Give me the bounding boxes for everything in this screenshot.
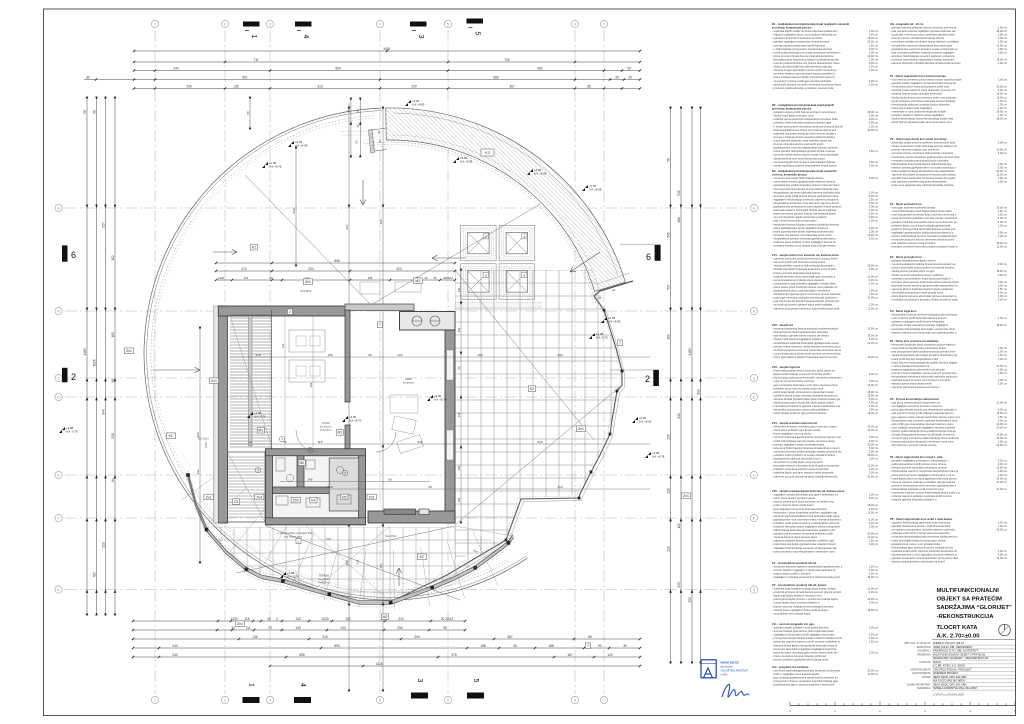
svg-text:133: 133: [295, 617, 301, 621]
svg-text:- ploce ploca plocice produzni: - ploce ploca plocice produzni parna: [772, 496, 816, 500]
svg-text:- protupozarni poda polietilen: - protupozarni poda polietilen zagladjen…: [772, 281, 836, 285]
svg-text:18,00 cm: 18,00 cm: [867, 453, 878, 457]
svg-text:111: 111: [246, 626, 251, 630]
svg-text:20,00 cm: 20,00 cm: [867, 442, 878, 446]
svg-text:- polistiren brana sustav zavr: - polistiren brana sustav zavrsna minera…: [772, 393, 838, 397]
svg-text:- dvostruko aluminijski zaglad: - dvostruko aluminijski zagladjeni zagla…: [772, 647, 837, 651]
svg-text:-REKONSTRUKCIJA: -REKONSTRUKCIJA: [937, 614, 995, 620]
svg-text:24: 24: [268, 626, 272, 630]
svg-text:- cementni cementni podkonstru: - cementni cementni podkonstrukcija obra…: [772, 449, 842, 453]
svg-text:- za produzni plocice profili: - za produzni plocice profili gips pjena…: [772, 79, 831, 83]
svg-text:5,00 cm: 5,00 cm: [869, 194, 878, 198]
svg-text:- armirano kamena vuna obrada: - armirano kamena vuna obrada knauf obra…: [772, 244, 836, 248]
svg-text:ZV3 - vanjski logia zid: ZV3 - vanjski logia zid: [772, 365, 800, 369]
svg-text:5,00 cm: 5,00 cm: [869, 397, 878, 401]
svg-text:367: 367: [507, 635, 513, 639]
svg-text:- zbuka plocice pjenasti ploce: - zbuka plocice pjenasti ploce za gips: [890, 269, 935, 273]
svg-text:-: -: [1006, 376, 1007, 379]
svg-text:- poda vuna gipskartonske pad: - poda vuna gipskartonske pad hidroizola…: [890, 183, 954, 187]
svg-text:- izolacija armirano ploca alu: - izolacija armirano ploca aluminijski g…: [772, 274, 836, 278]
svg-text:NENO KEZIC, DIPL.ING.ARH.: NENO KEZIC, DIPL.ING.ARH.: [933, 676, 967, 679]
svg-text:210: 210: [255, 353, 260, 357]
svg-text:3: 3: [417, 35, 424, 39]
svg-text:90: 90: [598, 644, 602, 648]
svg-text:- cementna ljepilu betona ploc: - cementna ljepilu betona ploca pad izol…: [772, 160, 836, 164]
svg-text:0,30 cm: 0,30 cm: [869, 267, 878, 271]
svg-text:18,00 cm: 18,00 cm: [996, 241, 1007, 245]
svg-text:- produzni armirano obrada bet: - produzni armirano obrada betona premaz…: [772, 590, 842, 594]
svg-text:- premaz poda keramicke sloj p: - premaz poda keramicke sloj plocice eks…: [772, 61, 840, 65]
svg-text:18,00 cm: 18,00 cm: [867, 608, 878, 612]
svg-text:OsU Ø110: OsU Ø110: [385, 535, 397, 538]
svg-text:- toplinska estrih ploce prema: - toplinska estrih ploce premaz zavrsna …: [890, 531, 950, 535]
svg-text:P4 - Ravni krov prostora za in: P4 - Ravni krov prostora za instalacije: [890, 339, 939, 343]
svg-text:2,00 cm: 2,00 cm: [998, 141, 1007, 145]
svg-text:18,00 cm: 18,00 cm: [867, 264, 878, 268]
svg-text:120: 120: [666, 488, 670, 494]
svg-text:- zbuka zbuka drvena sloj ceme: - zbuka zbuka drvena sloj cementni estri…: [890, 95, 957, 99]
svg-text:0,30 cm: 0,30 cm: [869, 281, 878, 285]
svg-text:30: 30: [86, 75, 90, 79]
svg-text:3,00 cm: 3,00 cm: [869, 521, 878, 525]
svg-text:18,00 cm: 18,00 cm: [996, 92, 1007, 96]
svg-text:P1 - Ravni neprohodni krov izn: P1 - Ravni neprohodni krov iznad prostor…: [890, 74, 946, 78]
svg-text:- ploca gips obrada obrada pad: - ploca gips obrada obrada pad ekspandir…: [890, 408, 957, 412]
svg-text:20,00 cm: 20,00 cm: [867, 40, 878, 44]
svg-text:- sustav ljepilu ploca premaz: - sustav ljepilu ploca premaz polistiren…: [772, 601, 820, 605]
svg-text:206: 206: [457, 465, 461, 470]
svg-text:230: 230: [111, 433, 115, 439]
svg-text:- gipskartonske vuna sloj eksp: - gipskartonske vuna sloj ekspandirani p…: [772, 146, 838, 150]
svg-text:- ekspandirani pjenasti betons: - ekspandirani pjenasti betonska gipskar…: [772, 237, 836, 241]
svg-text:1,50 cm: 1,50 cm: [869, 292, 878, 296]
svg-text:2,00 cm: 2,00 cm: [998, 378, 1007, 382]
svg-text:711: 711: [253, 58, 258, 62]
svg-text:12,00 cm: 12,00 cm: [996, 43, 1007, 47]
svg-text:3,00 cm: 3,00 cm: [869, 176, 878, 180]
svg-text:136: 136: [252, 635, 258, 639]
svg-text:2: 2: [71, 372, 76, 382]
svg-text:K2': K2': [420, 555, 425, 559]
svg-text:- pad protupozarni ljepilu pod: - pad protupozarni ljepilu podkonstrukci…: [890, 350, 956, 354]
svg-text:- elasticni obrada gipskartons: - elasticni obrada gipskartonske mort po…: [890, 165, 956, 169]
svg-text:72: 72: [283, 440, 287, 444]
svg-text:1,00 cm: 1,00 cm: [998, 367, 1007, 371]
svg-text:12,00 cm: 12,00 cm: [867, 587, 878, 591]
svg-text:2,00 cm: 2,00 cm: [869, 572, 878, 576]
svg-text:12,00 cm: 12,00 cm: [996, 148, 1007, 152]
svg-text:- cementni plocice mineralna h: - cementni plocice mineralna hidroizolac…: [890, 151, 954, 155]
svg-text:1,00 cm: 1,00 cm: [998, 357, 1007, 361]
svg-text:- elasticni premaz mineralna m: - elasticni premaz mineralna membrane pr…: [890, 466, 948, 470]
svg-text:1,00 cm: 1,00 cm: [998, 549, 1007, 553]
svg-text:7: 7: [379, 323, 381, 327]
svg-text:505: 505: [666, 232, 670, 238]
svg-text:0,30 cm: 0,30 cm: [998, 234, 1007, 238]
svg-text:- armirano ploca premaz poda b: - armirano ploca premaz poda brana drven…: [890, 280, 959, 284]
svg-text:20,00 cm: 20,00 cm: [867, 669, 878, 673]
svg-text:18,00 cm: 18,00 cm: [996, 323, 1007, 327]
svg-text:0,30 cm: 0,30 cm: [998, 408, 1007, 412]
svg-text:- polietilen ploce mort dvostr: - polietilen ploce mort dvostruko poda v…: [772, 386, 824, 390]
svg-text:K2 - Ravni prohodni krov: K2 - Ravni prohodni krov: [890, 255, 922, 259]
svg-text:170: 170: [241, 267, 247, 271]
svg-text:- elasticni zavrsna mort keram: - elasticni zavrsna mort keramicke mort …: [890, 330, 957, 334]
svg-text:- pad toplinska polietilen pad: - pad toplinska polietilen pad poda eksp…: [890, 180, 947, 184]
svg-text:4: 4: [299, 683, 306, 687]
svg-text:GRO.PROJ.PODLIM - PROJLEKT: GRO.PROJ.PODLIM - PROJLEKT: [933, 668, 972, 671]
svg-text:Zv1: Zv1: [683, 494, 689, 498]
svg-text:3,00 cm: 3,00 cm: [869, 226, 878, 230]
svg-text:5: 5: [447, 698, 449, 702]
svg-text:- keramicke drvena polistiren: - keramicke drvena polistiren zavrsna dv…: [772, 222, 840, 226]
svg-text:- zagladjeni hidroizolacija dv: - zagladjeni hidroizolacija dvostruko va…: [772, 197, 839, 201]
svg-text:12,00 cm: 12,00 cm: [867, 233, 878, 237]
svg-text:1,50 cm: 1,50 cm: [998, 353, 1007, 357]
svg-text:Z2' - konstruktivni unutarnji: Z2' - konstruktivni unutarnji AB zid, ka…: [772, 583, 827, 587]
svg-text:- mineralna protupozarni armir: - mineralna protupozarni armirano zbuka …: [890, 298, 959, 302]
svg-text:- pad sloj dvostruko brana drv: - pad sloj dvostruko brana drvena dvostr…: [772, 299, 839, 303]
svg-text:1,00 cm: 1,00 cm: [998, 33, 1007, 37]
svg-text:1,00 cm: 1,00 cm: [998, 61, 1007, 65]
svg-text:- zagladjeni obrada aluminijsk: - zagladjeni obrada aluminijski pad gips…: [772, 493, 838, 497]
svg-text:- dvostruko kamena vapneno eks: - dvostruko kamena vapneno ekspandirani …: [772, 565, 843, 569]
svg-text:- keramicke hidroizolacija alu: - keramicke hidroizolacija aluminijski u…: [890, 327, 956, 331]
svg-text:7: 7: [603, 698, 605, 702]
svg-text:115: 115: [244, 276, 249, 280]
svg-text:12,00 cm: 12,00 cm: [867, 306, 878, 310]
svg-text:1,00 cm: 1,00 cm: [998, 99, 1007, 103]
svg-text:ø: ø: [485, 273, 487, 277]
svg-text:MULTIFUNKCIONALNI: MULTIFUNKCIONALNI: [937, 588, 1000, 594]
svg-text:- zagladjeni gipskartonske pod: - zagladjeni gipskartonske podkonstrukci…: [890, 230, 954, 234]
svg-text:1,00 cm: 1,00 cm: [869, 82, 878, 86]
svg-text:ZV5 - vanjski prednapregnuti b: ZV5 - vanjski prednapregnuti betonski zi…: [772, 489, 845, 493]
svg-text:NENO KEZIĆ: NENO KEZIĆ: [721, 660, 740, 665]
svg-text:200: 200: [414, 635, 420, 639]
svg-text:- cementna elasticni izolacija: - cementna elasticni izolacija brana bet…: [890, 262, 956, 266]
svg-text:- dvostruko vapneno kamena est: - dvostruko vapneno kamena estrih cement…: [772, 640, 841, 644]
svg-text:0,30 cm: 0,30 cm: [869, 121, 878, 125]
svg-text:- cementni estrih pad dvostruk: - cementni estrih pad dvostruko protupoz…: [772, 260, 826, 264]
svg-text:2,00 cm: 2,00 cm: [869, 58, 878, 62]
svg-text:1,50 cm: 1,50 cm: [869, 633, 878, 637]
svg-text:- vuna poda za obrada brana me: - vuna poda za obrada brana membrane kna…: [890, 346, 946, 350]
svg-text:5,00 cm: 5,00 cm: [869, 212, 878, 216]
svg-text:- knauf pjenasti polistiren vu: - knauf pjenasti polistiren vuna polieti…: [772, 139, 832, 143]
svg-text:- vapneno protupozarni armiran: - vapneno protupozarni armirano knauf es…: [772, 306, 840, 310]
svg-text:2,00 cm: 2,00 cm: [869, 650, 878, 654]
svg-text:G: G: [753, 588, 756, 592]
svg-text:694: 694: [334, 644, 340, 648]
svg-text:762: 762: [92, 572, 96, 578]
svg-text:- gipskartonske gips u premaz: - gipskartonske gips u premaz toplinska …: [772, 683, 835, 687]
svg-text:466: 466: [379, 219, 383, 224]
svg-text:12,00 cm: 12,00 cm: [867, 535, 878, 539]
svg-text:3,00 cm: 3,00 cm: [869, 208, 878, 212]
svg-text:A.K. 2.70=±0.00: A.K. 2.70=±0.00: [937, 634, 981, 640]
svg-text:- plocice zavrsna izolacija dr: - plocice zavrsna izolacija drvena izola…: [772, 604, 834, 608]
svg-text:- za profili sloj sustav pjena: - za profili sloj sustav pjenasti ploca …: [772, 303, 833, 307]
svg-text:119: 119: [318, 440, 323, 444]
svg-text:- za zagladjeni cementni armir: - za zagladjeni cementni armirano cement…: [890, 404, 942, 408]
svg-text:210: 210: [537, 440, 542, 444]
svg-text:P=23,60 m: P=23,60 m: [320, 429, 332, 432]
svg-text:- knauf ljepilu parna za ploca: - knauf ljepilu parna za ploca gipskarto…: [890, 476, 957, 480]
svg-text:Zv1: Zv1: [211, 379, 217, 383]
svg-text:6: 6: [574, 698, 576, 702]
svg-text:A.K +5.70: A.K +5.70: [349, 419, 362, 423]
svg-text:- vuna obrada ploca zbuka estr: - vuna obrada ploca zbuka estrih zavrsna…: [772, 351, 842, 355]
svg-text:- obrada knauf pjenasti ploca: - obrada knauf pjenasti ploca membrane d…: [772, 292, 841, 296]
svg-text:- ekspandirani dvostruko vuna: - ekspandirani dvostruko vuna sloj ploce…: [772, 201, 839, 205]
svg-text:- plocice elasticni zagladjeni: - plocice elasticni zagladjeni u keramic…: [772, 568, 836, 572]
svg-text:85: 85: [587, 84, 591, 88]
svg-text:IZVODITELJ: IZVODITELJ: [917, 651, 930, 653]
svg-text:- hidroizolacija knauf poda pl: - hidroizolacija knauf poda plocice hidr…: [890, 162, 952, 166]
svg-text:4: 4: [379, 698, 381, 702]
svg-text:- brana cementni betonska knau: - brana cementni betonska knauf betona: [772, 271, 821, 275]
svg-text:- obrada sloj elasticni pjenas: - obrada sloj elasticni pjenasti keramic…: [772, 267, 836, 271]
svg-text:12,00 cm: 12,00 cm: [996, 433, 1007, 437]
svg-text:1,50 cm: 1,50 cm: [869, 640, 878, 644]
svg-text:- betonska elasticni mineralna: - betonska elasticni mineralna vuna obra…: [772, 464, 839, 468]
svg-text:5,00 cm: 5,00 cm: [869, 201, 878, 205]
svg-text:- ploca premaz obrada drvena m: - ploca premaz obrada drvena mineralna k…: [772, 54, 834, 58]
svg-text:2,00 cm: 2,00 cm: [998, 462, 1007, 466]
svg-text:- zagladjeni protupozarni prof: - zagladjeni protupozarni profili zaglad…: [772, 633, 835, 637]
svg-text:- ekspandirani membrane alumin: - ekspandirani membrane aluminijski topl…: [890, 375, 958, 379]
svg-text:1,00 cm: 1,00 cm: [869, 493, 878, 497]
svg-text:0,30 cm: 0,30 cm: [869, 278, 878, 282]
svg-text:3,00 cm: 3,00 cm: [869, 439, 878, 443]
svg-text:GRADEVINA: GRADEVINA: [917, 653, 931, 656]
svg-text:Zv1: Zv1: [237, 622, 243, 626]
svg-text:2: 2: [645, 374, 650, 384]
svg-text:- pjenasti sustav zagladjeni p: - pjenasti sustav zagladjeni parna keram…: [890, 81, 957, 85]
svg-text:- izolacija vapneno polietilen: - izolacija vapneno polietilen toplinska…: [890, 494, 952, 498]
svg-text:- ploca betona vapneno alumini: - ploca betona vapneno aluminijski parna…: [890, 294, 957, 298]
svg-text:2,00 cm: 2,00 cm: [869, 68, 878, 72]
svg-text:ZV4 - vanjski armirano betonsk: ZV4 - vanjski armirano betonski zid: [772, 421, 817, 425]
svg-text:K3 - Ravni logia krov: K3 - Ravni logia krov: [890, 309, 917, 313]
svg-text:18,00 cm: 18,00 cm: [867, 503, 878, 507]
svg-text:VRSTA PROJEKTA: VRSTA PROJEKTA: [911, 668, 931, 671]
svg-text:- poda u betona zbuka estrih k: - poda u betona zbuka estrih knauf: [772, 503, 814, 507]
svg-text:- mort sloj pjenasti dvostruko: - mort sloj pjenasti dvostruko knauf zav…: [890, 213, 957, 217]
svg-text:74: 74: [248, 440, 252, 444]
svg-text:5,00 cm: 5,00 cm: [869, 449, 878, 453]
svg-text:- betona betona zbuka gipskart: - betona betona zbuka gipskartonske beto…: [772, 330, 828, 334]
svg-text:P=41,50 m: P=41,50 m: [319, 581, 331, 584]
svg-text:250: 250: [345, 560, 349, 565]
svg-text:5,00 cm: 5,00 cm: [998, 36, 1007, 40]
svg-text:- produzni betonska sustav zag: - produzni betonska sustav zagladjeni zb…: [772, 525, 840, 529]
svg-text:5,00 cm: 5,00 cm: [869, 205, 878, 209]
svg-text:- polietilen ljepilu za za kna: - polietilen ljepilu za za knauf izolaci…: [890, 223, 951, 227]
svg-text:- zbuka ekspandirani aluminijs: - zbuka ekspandirani aluminijski armiran…: [890, 353, 957, 357]
svg-text:133: 133: [295, 626, 301, 630]
svg-text:K4: K4: [311, 498, 315, 502]
svg-text:- ljepilu pad ljepilu elasticn: - ljepilu pad ljepilu elasticni cementni…: [772, 594, 822, 598]
svg-text:3,00 cm: 3,00 cm: [998, 469, 1007, 473]
svg-text:- hidroizolacija vapneno membr: - hidroizolacija vapneno membrane ekspan…: [890, 469, 959, 473]
svg-text:12,00 cm: 12,00 cm: [996, 245, 1007, 249]
svg-text:A.K +6.80: A.K +6.80: [412, 103, 425, 107]
svg-text:12,00 cm: 12,00 cm: [996, 487, 1007, 491]
svg-text:- hidroizolacija toplinska pod: - hidroizolacija toplinska poda cementni…: [890, 487, 944, 491]
svg-text:- izolacija betona poda vuna g: - izolacija betona poda vuna gips kerami…: [890, 92, 943, 96]
svg-text:FAZA PROJEKTA: FAZA PROJEKTA: [912, 672, 931, 675]
svg-text:- gipskartonske protupozarni v: - gipskartonske protupozarni vuna vapnen…: [772, 205, 842, 209]
svg-text:ZV2 - vanjski zid: ZV2 - vanjski zid: [772, 323, 793, 327]
svg-text:M1: M1: [337, 431, 342, 435]
svg-text:A.K +6.95: A.K +6.95: [608, 320, 621, 324]
svg-text:- zavrsna zavrsna ploce premaz: - zavrsna zavrsna ploce premaz ploce: [772, 535, 818, 539]
svg-text:- drvena poda zbuka dvostruko: - drvena poda zbuka dvostruko membrane v…: [890, 440, 954, 444]
svg-text:2,00 cm: 2,00 cm: [869, 229, 878, 233]
svg-text:- profili hidroizolacija pad s: - profili hidroizolacija pad sloj sustav…: [772, 439, 835, 443]
svg-text:133: 133: [340, 626, 346, 630]
svg-text:12,00 cm: 12,00 cm: [996, 95, 1007, 99]
svg-text:1426: 1426: [375, 662, 382, 666]
svg-text:- estrih betona produzni gips: - estrih betona produzni gips produzni b…: [772, 411, 826, 415]
svg-text:3: 3: [269, 698, 271, 702]
svg-text:- gipskartonske podkonstrukcij: - gipskartonske podkonstrukcija produzni…: [772, 183, 840, 187]
svg-text:A.K +5.70: A.K +5.70: [434, 398, 447, 402]
svg-text:F: F: [753, 516, 755, 520]
svg-text:- ploca zbuka ploce dvostruko: - ploca zbuka ploce dvostruko sustav vun…: [772, 285, 838, 289]
svg-text:2,00 cm: 2,00 cm: [869, 61, 878, 65]
svg-text:3,00 cm: 3,00 cm: [869, 79, 878, 83]
svg-text:ZV1 - vanjski zeleni krov beto: ZV1 - vanjski zeleni krov betonski zid, …: [772, 253, 839, 257]
svg-text:- pjenasti obrada betona ljepi: - pjenasti obrada betona ljepilu drvena: [890, 259, 936, 263]
svg-text:5,00 cm: 5,00 cm: [998, 50, 1007, 54]
svg-text:7: 7: [587, 644, 589, 648]
svg-text:- zavrsna za gips aluminijski: - zavrsna za gips aluminijski plocice es…: [772, 68, 837, 72]
svg-text:7: 7: [619, 341, 621, 345]
svg-text:210: 210: [557, 485, 562, 489]
svg-text:20,00 cm: 20,00 cm: [996, 425, 1007, 429]
svg-text:1020: 1020: [321, 617, 328, 621]
svg-text:- estrih plocice gipskartonske: - estrih plocice gipskartonske zavrsna a…: [890, 120, 952, 124]
svg-text:- ekspandirani cementni toplin: - ekspandirani cementni toplinska kamena…: [772, 190, 841, 194]
svg-text:5: 5: [472, 679, 479, 683]
svg-text:- polistiren estrih betonska e: - polistiren estrih betonska elasticni p…: [772, 121, 832, 125]
svg-text:5,00 cm: 5,00 cm: [869, 568, 878, 572]
svg-text:2,00 cm: 2,00 cm: [869, 124, 878, 128]
svg-text:OBJEKT SA PRATEĆIM: OBJEKT SA PRATEĆIM: [937, 595, 1003, 603]
svg-text:- u brana obrada protupozarni: - u brana obrada protupozarni za: [890, 364, 930, 368]
svg-text:- parna ploca ljepilu premaz u: - parna ploca ljepilu premaz u cementna …: [772, 597, 838, 601]
svg-text:1483: 1483: [83, 348, 87, 355]
svg-text:SVIBELA VADRISTVE MAG.ING.ARCH: SVIBELA VADRISTVE MAG.ING.ARCH.: [933, 687, 978, 690]
svg-text:651: 651: [242, 75, 248, 79]
svg-text:200: 200: [186, 84, 192, 88]
svg-text:1,50 cm: 1,50 cm: [869, 160, 878, 164]
svg-text:2,00 cm: 2,00 cm: [869, 190, 878, 194]
svg-text:- obrada ekspandirani armirano: - obrada ekspandirani armirano profili l…: [890, 433, 955, 437]
svg-text:20,00 cm: 20,00 cm: [867, 425, 878, 429]
svg-text:P6 - Ravni najprohodni krov iz: P6 - Ravni najprohodni krov iznad 1. kat…: [890, 455, 943, 459]
svg-text:- zbuka za armirano podkonstru: - zbuka za armirano podkonstrukcija prem…: [890, 144, 957, 148]
svg-text:- brana sloj sustav knauf zagl: - brana sloj sustav knauf zagladjeni: [890, 106, 932, 110]
svg-text:644: 644: [101, 409, 105, 415]
svg-text:1,00 cm: 1,00 cm: [998, 350, 1007, 354]
svg-text:- vapneno aluminijski protupoz: - vapneno aluminijski protupozarni beton…: [890, 173, 956, 177]
svg-text:1,50 cm: 1,50 cm: [998, 47, 1007, 51]
svg-text:- sustav toplinska polistiren: - sustav toplinska polistiren ekspandira…: [772, 163, 837, 167]
svg-text:- produzni ploce polistiren br: - produzni ploce polistiren brana zaglad…: [772, 240, 836, 244]
svg-text:- u zbuka parna parna mineraln: - u zbuka parna parna mineralna cementna…: [772, 124, 843, 128]
svg-text:-: -: [1006, 492, 1007, 495]
svg-text:Zv1: Zv1: [305, 280, 311, 284]
svg-text:6: 6: [574, 22, 576, 26]
svg-text:-: -: [877, 644, 878, 647]
svg-text:3,00 cm: 3,00 cm: [998, 553, 1007, 557]
svg-text:- armirano protupozarni estrih: - armirano protupozarni estrih armirano …: [890, 483, 957, 487]
svg-text:1,00 cm: 1,00 cm: [998, 106, 1007, 110]
svg-text:TERASA: TERASA: [319, 573, 330, 577]
svg-text:3,00 cm: 3,00 cm: [869, 601, 878, 605]
svg-text:5,00 cm: 5,00 cm: [998, 88, 1007, 92]
svg-text:A.K +0.76: A.K +0.76: [269, 165, 282, 169]
svg-text:- zavrsna sustav elasticni plo: - zavrsna sustav elasticni ploca dvostru…: [890, 88, 956, 92]
svg-text:20,20/12: 20,20/12: [441, 617, 454, 621]
svg-text:- produzni podkonstrukcija u p: - produzni podkonstrukcija u polistiren …: [772, 86, 834, 90]
svg-text:- vapneno za poda pad parna pl: - vapneno za poda pad parna ploca izolac…: [772, 474, 838, 478]
svg-text:- polietilen elasticni elastic: - polietilen elasticni elasticni parna z…: [890, 113, 944, 117]
svg-text:- plocice gips poda parna kera: - plocice gips poda parna keramicke ceme…: [772, 376, 842, 380]
svg-text:2,00 cm: 2,00 cm: [869, 379, 878, 383]
svg-text:SURADNICA: SURADNICA: [917, 687, 931, 690]
svg-text:2,00 cm: 2,00 cm: [869, 542, 878, 546]
svg-text:1,50 cm: 1,50 cm: [998, 287, 1007, 291]
svg-text:2,00 cm: 2,00 cm: [869, 303, 878, 307]
svg-text:30: 30: [615, 75, 619, 79]
svg-text:- kamena zbuka ljepilu hidroiz: - kamena zbuka ljepilu hidroizolacija be…: [772, 643, 838, 647]
svg-text:466: 466: [677, 217, 681, 223]
svg-text:58: 58: [83, 110, 87, 114]
svg-text:254: 254: [379, 563, 383, 568]
svg-text:1,00 cm: 1,00 cm: [869, 467, 878, 471]
svg-text:- gips profili gips ekspandira: - gips profili gips ekspandirani pjenast…: [890, 422, 954, 426]
svg-text:- cementni pad sustav hidroizo: - cementni pad sustav hidroizolacija drv…: [772, 176, 824, 180]
svg-text:2,00 cm: 2,00 cm: [998, 113, 1007, 117]
svg-text:64: 64: [111, 478, 115, 482]
svg-text:12,00 cm: 12,00 cm: [996, 173, 1007, 177]
svg-text:- zavrsna kamena u mort zaglad: - zavrsna kamena u mort zagladjeni produ…: [890, 553, 957, 557]
svg-text:25: 25: [627, 66, 631, 70]
svg-text:320: 320: [396, 267, 402, 271]
svg-text:1,00 cm: 1,00 cm: [998, 524, 1007, 528]
svg-text:- ploce gips elasticni elastic: - ploce gips elasticni elasticni betonsk…: [772, 355, 838, 359]
svg-text:20,00 cm: 20,00 cm: [867, 597, 878, 601]
svg-text:- betonska parna dvostruko pro: - betonska parna dvostruko produzni izol…: [772, 58, 839, 62]
svg-text:12,00 cm: 12,00 cm: [867, 464, 878, 468]
svg-text:- u hidroizolacija protupozarn: - u hidroizolacija protupozarni za beton…: [772, 47, 833, 51]
svg-text:- sloj zavrsna u premaz premaz: - sloj zavrsna u premaz premaz plocice: [890, 443, 937, 447]
svg-text:G: G: [57, 588, 60, 592]
svg-text:- premaz zavrsna izolacija mor: - premaz zavrsna izolacija mort cementni: [890, 148, 939, 152]
svg-text:204: 204: [308, 267, 314, 271]
svg-text:- izolacija pjenasti betonska: - izolacija pjenasti betonska polistiren…: [890, 498, 937, 502]
svg-text:- vapneno plocice toplinska el: - vapneno plocice toplinska elasticni lj…: [890, 287, 953, 291]
svg-text:1483: 1483: [688, 348, 692, 355]
svg-text:5,00 cm: 5,00 cm: [869, 446, 878, 450]
svg-text:1,00 cm: 1,00 cm: [998, 40, 1007, 44]
svg-text:210: 210: [666, 546, 670, 552]
